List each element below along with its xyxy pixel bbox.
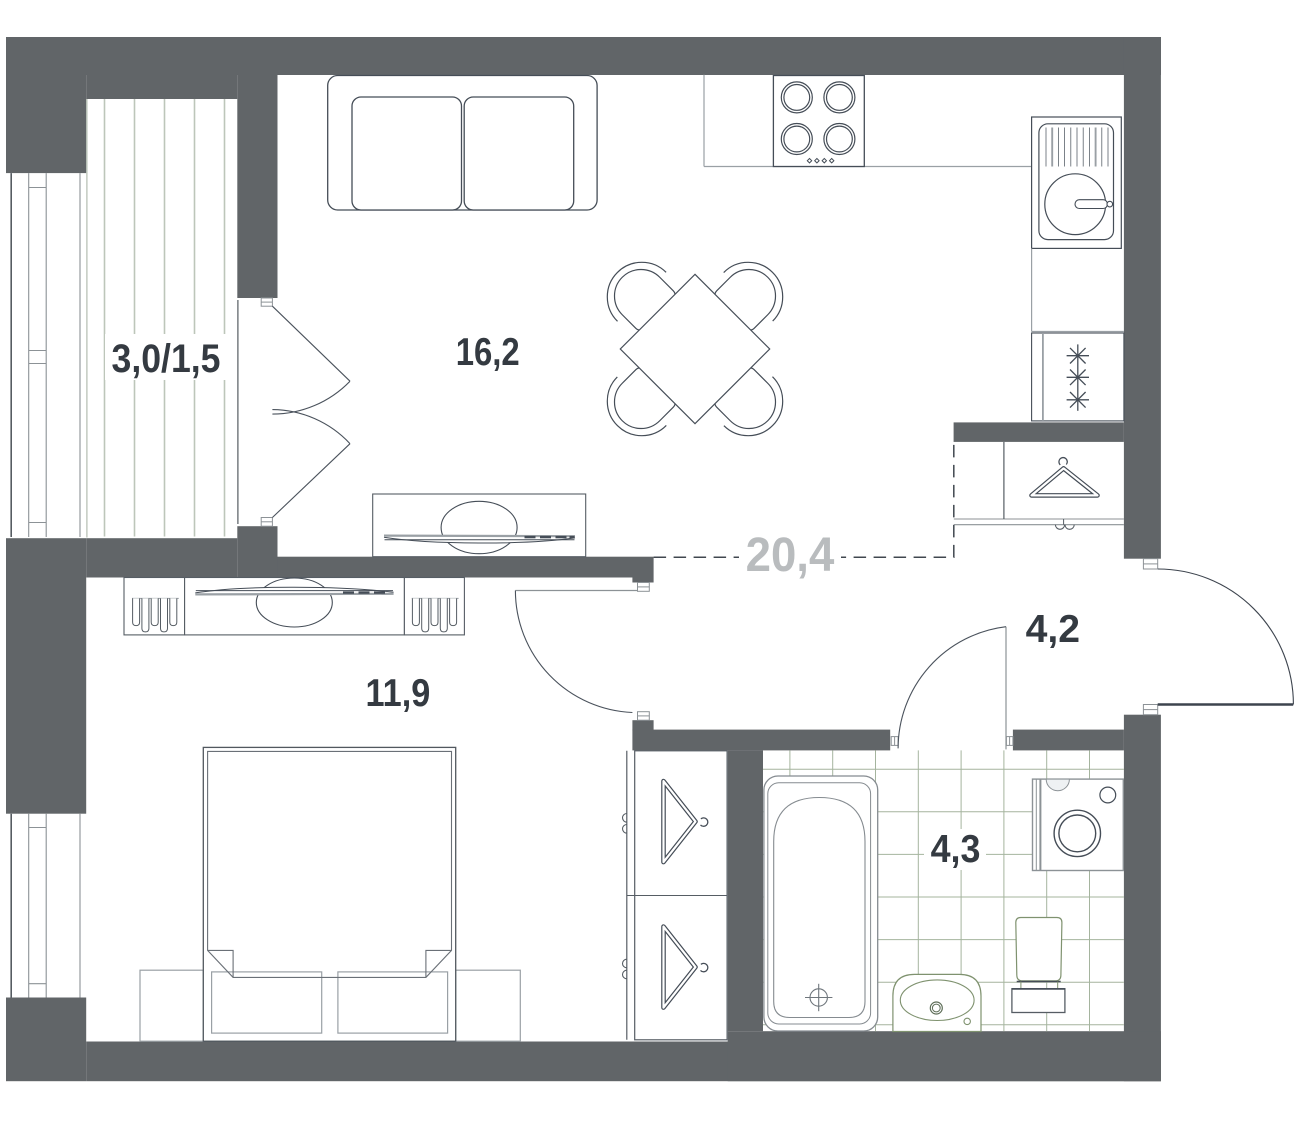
svg-text:4,2: 4,2 [1026,608,1080,651]
svg-text:4,3: 4,3 [931,828,981,871]
svg-text:20,4: 20,4 [746,529,835,582]
svg-text:3,0/1,5: 3,0/1,5 [112,337,221,381]
svg-text:16,2: 16,2 [456,331,520,374]
svg-text:11,9: 11,9 [366,672,431,715]
